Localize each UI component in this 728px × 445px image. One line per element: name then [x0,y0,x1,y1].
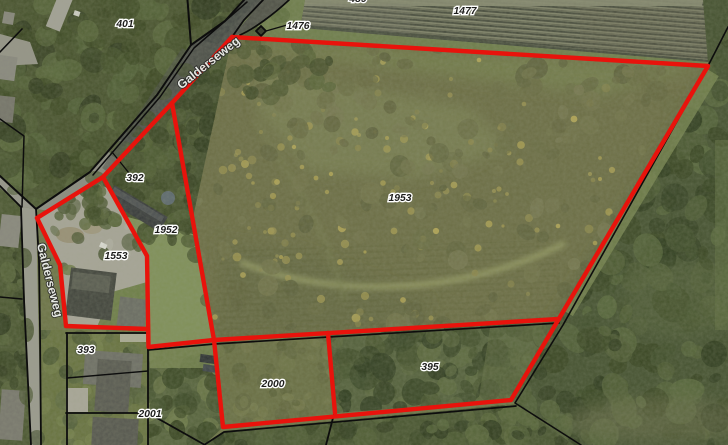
svg-text:1952: 1952 [155,225,178,236]
svg-text:395: 395 [421,362,438,373]
svg-text:2001: 2001 [138,409,162,420]
svg-text:1476: 1476 [287,21,310,32]
svg-text:401: 401 [115,19,133,30]
svg-text:2000: 2000 [261,379,285,390]
svg-text:1477: 1477 [454,6,478,17]
svg-text:489: 489 [348,0,366,5]
svg-text:393: 393 [77,345,94,356]
svg-text:1953: 1953 [389,193,412,204]
svg-text:1553: 1553 [105,251,128,262]
svg-text:392: 392 [126,173,143,184]
